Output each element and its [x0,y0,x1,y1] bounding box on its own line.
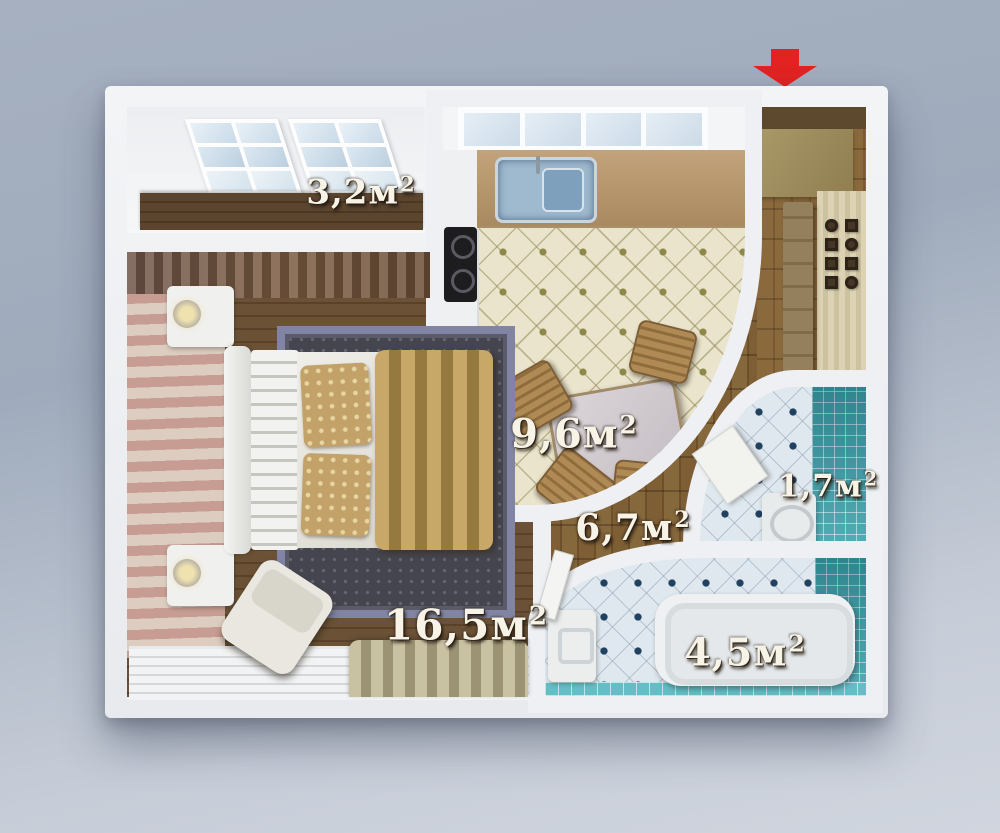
picture-frame-icon [825,257,838,270]
wardrobe [783,202,813,377]
bed-pillow [301,453,372,537]
bed-blanket [375,350,493,550]
bed-pillow [300,362,372,447]
window-pane [301,147,348,167]
room-bathroom [545,558,866,696]
window-pane [525,113,581,146]
window-pane [337,123,384,143]
window-pane [293,123,340,143]
window-pane [250,171,297,191]
entrance-door-mat [757,129,853,197]
washer-door-icon [558,628,594,664]
window-pane [190,123,237,143]
area-label-hallway: 6,7м2 [575,507,690,549]
window-pane [242,147,289,167]
table-lamp-icon [173,300,201,328]
washing-machine [548,610,596,682]
entrance-door-strip [757,107,866,129]
apartment-plan: 3,2м2 9,6м2 6,7м2 16,5м2 4,5м2 1,7м2 [105,86,888,718]
entrance-arrow-head [753,66,817,87]
nightstand [167,286,234,347]
sink-basin [542,168,584,212]
window-pane [464,113,520,146]
picture-frame-icon [845,219,858,232]
floorplan-scene: 3,2м2 9,6м2 6,7м2 16,5м2 4,5м2 1,7м2 [0,0,1000,833]
kitchen-chair [610,459,677,505]
picture-frame-icon [825,238,838,251]
window-pane [646,113,702,146]
bed-slatted-edge [251,350,299,550]
picture-frame-icon [825,219,838,232]
window-pane [586,113,642,146]
area-label-kitchen: 9,6м2 [510,410,638,457]
window-pane [198,147,245,167]
table-lamp-icon [173,559,201,587]
area-label-balcony: 3,2м2 [306,171,415,212]
picture-frame-icon [845,276,858,289]
picture-frame-icon [825,276,838,289]
kitchen-sink [495,157,597,223]
wall-picture-frames [825,219,859,289]
area-label-toilet: 1,7м2 [778,467,878,504]
area-label-bathroom: 4,5м2 [684,630,806,675]
kitchen-window [458,107,708,152]
bed-headboard [224,346,251,554]
window-pane [206,171,253,191]
window-pane [234,123,281,143]
toilet-bowl-icon [770,505,814,543]
area-label-bedroom: 16,5м2 [384,601,548,650]
sink-faucet-icon [536,156,540,174]
nightstand [167,545,234,606]
entrance-hall [757,107,866,390]
room-balcony [127,107,425,233]
picture-frame-icon [845,257,858,270]
window-pane [345,147,392,167]
balcony-window [185,119,303,195]
picture-frame-icon [845,238,858,251]
